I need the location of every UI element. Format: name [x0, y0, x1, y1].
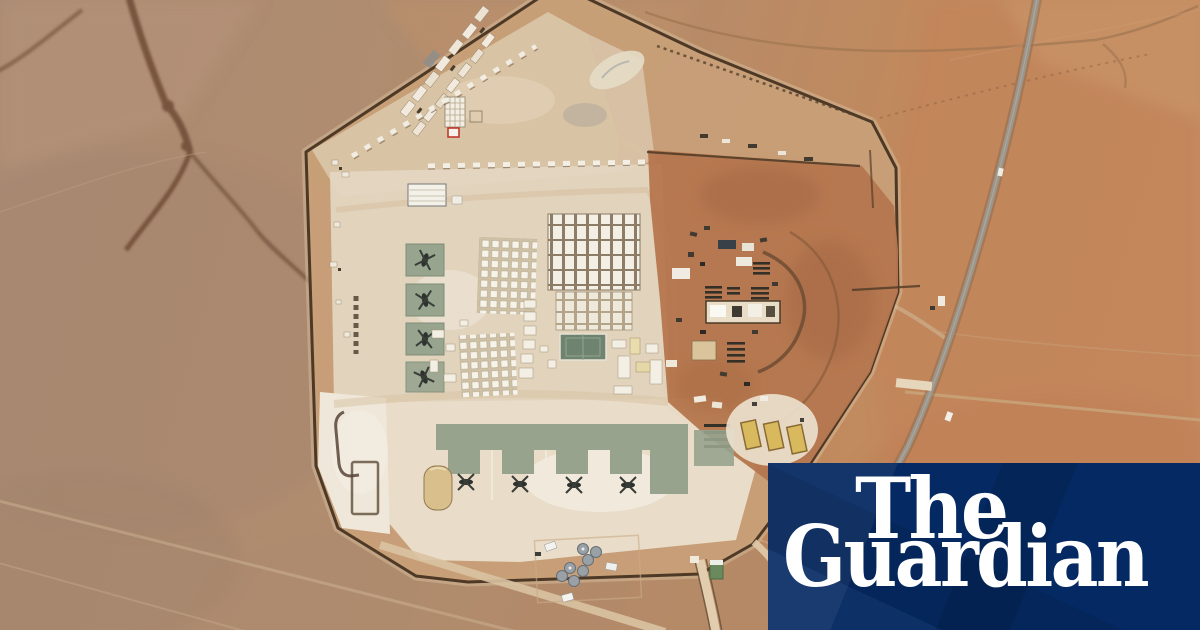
gate-structure [938, 296, 945, 306]
news-image-card: The Guardian [0, 0, 1200, 630]
tent-grid [458, 333, 517, 398]
fuel-pads [726, 394, 818, 466]
warehouse [408, 184, 446, 206]
quonset-hut [424, 466, 452, 510]
guardian-logo: The Guardian [768, 463, 1200, 630]
red-marked-cell [448, 128, 459, 137]
sports-court [560, 334, 606, 360]
building-complex [548, 214, 640, 290]
guardian-logo-guardian: Guardian [783, 515, 1147, 599]
